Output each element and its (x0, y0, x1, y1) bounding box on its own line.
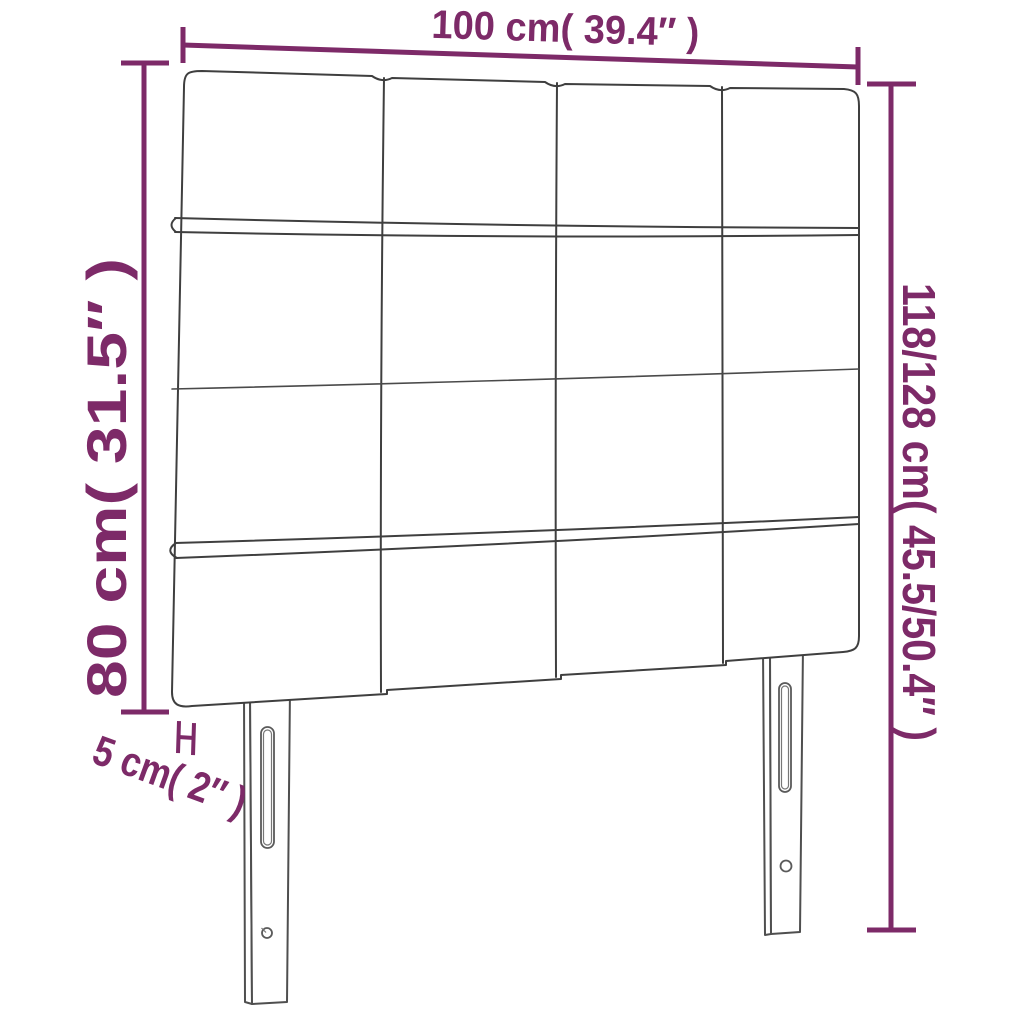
right-leg (763, 646, 803, 935)
left-leg (244, 688, 290, 1004)
headboard-height-dimension: 80 cm( 31.5″ ) (75, 63, 169, 712)
headboard (170, 71, 859, 706)
left-leg-front-face (250, 688, 290, 1004)
total-height-dimension: 118/128 cm( 45.5/50.4″ ) (867, 84, 945, 930)
right-leg-front-face (770, 646, 803, 934)
thickness-dimension: 5 cm( 2″ ) (87, 721, 253, 825)
headboard-dimension-diagram: 100 cm( 39.4″ ) 80 cm( 31.5″ ) 118/128 c… (0, 0, 1024, 1024)
headboard-outline (172, 71, 859, 706)
total-height-label: 118/128 cm( 45.5/50.4″ ) (893, 283, 945, 741)
panel-separator-vertical-3 (722, 87, 723, 663)
diagram-canvas: 100 cm( 39.4″ ) 80 cm( 31.5″ ) 118/128 c… (0, 0, 1024, 1024)
thickness-label: 5 cm( 2″ ) (87, 726, 253, 825)
width-dimension-label: 100 cm( 39.4″ ) (431, 3, 700, 55)
headboard-height-label: 80 cm( 31.5″ ) (75, 258, 138, 698)
thickness-bracket (178, 721, 194, 755)
